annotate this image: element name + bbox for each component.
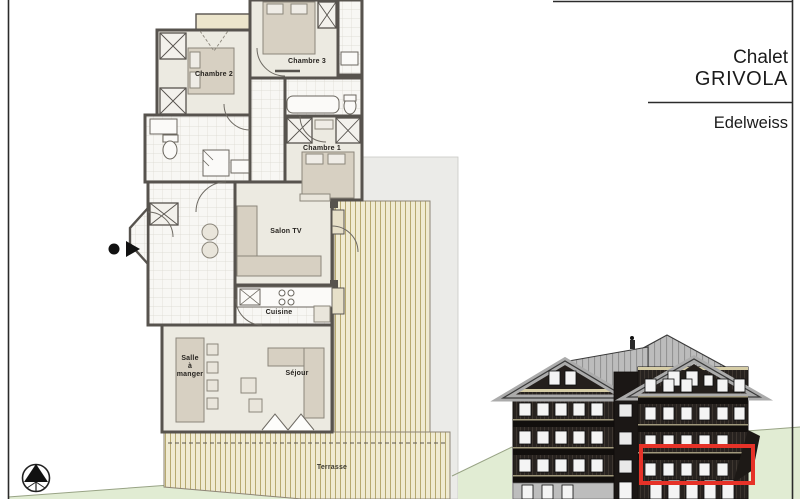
unit-name: Edelweiss xyxy=(714,114,788,133)
room-label-salle-a-manger: Salle à manger xyxy=(177,355,204,379)
drawing-sheet: Chambre 2 Chambre 3 Chambre 1 Salon TV C… xyxy=(0,0,800,499)
room-label-chambre1: Chambre 1 xyxy=(303,145,341,153)
project-title-line1: Chalet xyxy=(733,47,788,69)
room-label-chambre2: Chambre 2 xyxy=(195,71,233,79)
room-label-chambre3: Chambre 3 xyxy=(288,58,326,66)
room-label-salon-tv: Salon TV xyxy=(270,228,302,236)
room-label-sejour: Séjour xyxy=(286,370,309,378)
building-elevation xyxy=(503,335,760,499)
room-label-terrasse: Terrasse xyxy=(317,464,347,472)
compass-north-icon xyxy=(23,464,50,492)
room-label-cuisine: Cuisine xyxy=(266,309,293,317)
floor-plan-drawing xyxy=(0,0,800,499)
project-title-line2: GRIVOLA xyxy=(695,68,788,91)
